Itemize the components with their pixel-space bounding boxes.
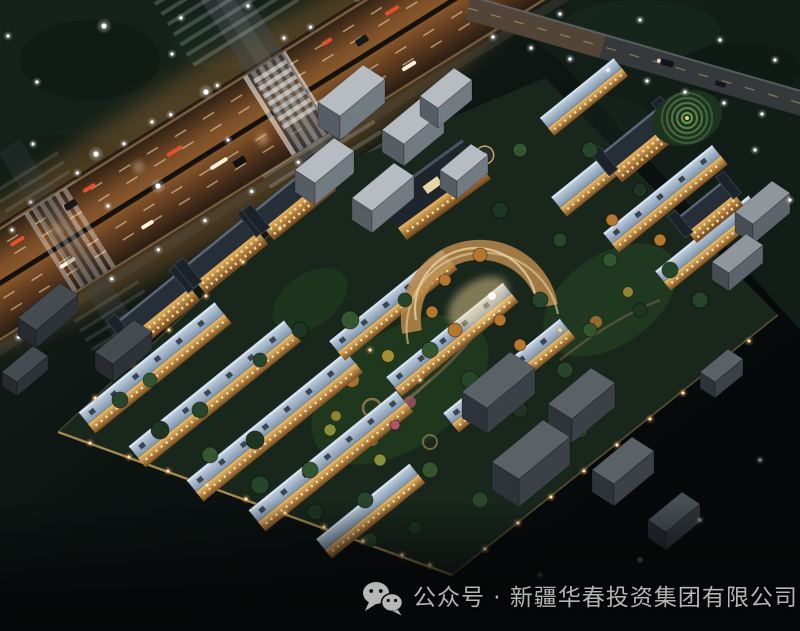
wechat-icon bbox=[362, 580, 404, 616]
night-aerial-rendering: 公众号 · 新疆华春投资集团有限公司 bbox=[0, 0, 800, 631]
watermark: 公众号 · 新疆华春投资集团有限公司 bbox=[362, 580, 798, 616]
rendering-canvas bbox=[0, 0, 800, 631]
watermark-text: 公众号 · 新疆华春投资集团有限公司 bbox=[413, 587, 798, 610]
